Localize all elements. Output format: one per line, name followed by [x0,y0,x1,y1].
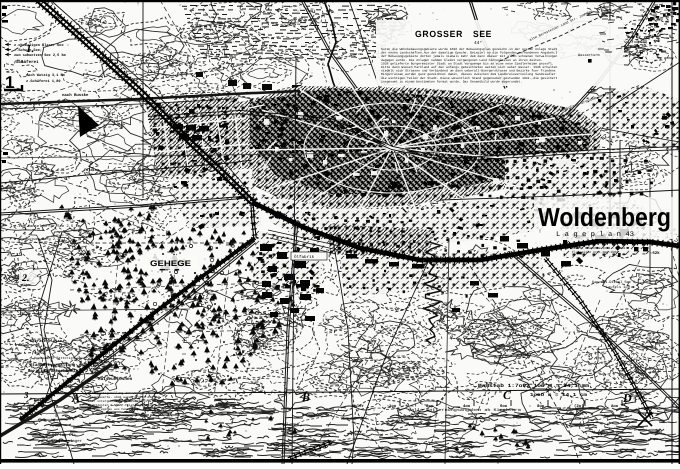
svg-text:C: C [503,388,512,402]
svg-text:Haler: Haler [352,404,365,409]
svg-text:zum schuetzen See 2,5 km: zum schuetzen See 2,5 km [14,53,67,58]
svg-text:2.: 2. [21,273,30,284]
svg-text:1oo: 1oo [389,404,397,409]
svg-text:alle Entfernungsangaben ab Kir: alle Entfernungsangaben ab Kirchturm [411,408,522,413]
svg-text:nach Busske: nach Busske [62,93,89,98]
svg-text:B: B [301,390,310,404]
svg-text:z.Obersutwen Berg 2,3: z.Obersutwen Berg 2,3 [14,237,59,242]
svg-text:z.Schwan See;: z.Schwan See; [14,48,42,53]
svg-text:Gefangenenlager: Gefangenenlager [46,439,83,444]
svg-text:D: D [622,391,632,405]
svg-text:eine Grenznau aus Fertigung: eine Grenznau aus Fertigung [88,407,138,411]
svg-text:GEHEGE: GEHEGE [150,259,192,268]
svg-text:Kaiseuhlöshen: Kaiseuhlöshen [98,376,133,382]
svg-text:Steine: Steine [34,351,46,356]
svg-text:z.Schäferei 1,89: z.Schäferei 1,89 [26,79,61,84]
svg-text:Wasserturm: Wasserturm [578,53,600,58]
svg-text:Flugzeiten erst.Geg.1984: Flugzeiten erst.Geg.1984 [572,250,618,254]
svg-text:z.zum Hanseldorfer See 2,5 km: z.zum Hanseldorfer See 2,5 km [14,224,81,229]
svg-text:Woldenberg: Woldenberg [538,202,671,232]
svg-text:1ooo m = 14,1 cm: 1ooo m = 14,1 cm [530,392,587,398]
svg-text:A: A [71,391,80,405]
svg-text:z.ehemaligen Blaser See: z.ehemaligen Blaser See [14,43,64,48]
svg-text:1913 - 193o: 1913 - 193o [440,137,462,142]
svg-text:L a g e p l a n 43: L a g e p l a n 43 [556,230,634,239]
svg-text:insgesamt zu einem bestimmten: insgesamt zu einem bestimmten Format wur… [381,79,522,83]
svg-text:Kanonel.Diebel See 3,1: Kanonel.Diebel See 3,1 [592,280,639,285]
svg-text:Laufels 1oo: Laufels 1oo [606,285,630,290]
svg-text:8oo: 8oo [537,404,545,409]
svg-text:Aoo: Aoo [611,404,619,409]
svg-text:-62k: -62k [650,251,660,256]
svg-text:GROSSER: GROSSER [415,29,463,39]
svg-text:(2o): (2o) [574,404,584,409]
svg-text:Wasserwerk 1oo m ab: Wasserwerk 1oo m ab [432,132,471,137]
svg-text:Laubwesle: Laubwesle [636,345,655,350]
svg-text:Exerzierplätze: Exerzierplätze [30,339,63,344]
svg-text:Offlag IIc: Offlag IIc [52,433,77,438]
svg-text:SEE: SEE [473,29,492,39]
svg-text:44°: 44° [474,40,482,46]
svg-text:alte: alte [449,127,457,132]
svg-text:3: 3 [23,390,29,400]
svg-text:nach Wutzig 3,1 km: nach Wutzig 3,1 km [26,73,66,78]
svg-text:Krebsaunen Batterien: Krebsaunen Batterien [34,356,75,361]
svg-text:Maßstab 1:7o92 1oo m = 14,1 mm: Maßstab 1:7o92 1oo m = 14,1 mm [478,383,589,389]
svg-text:Felding: Felding [84,168,99,173]
